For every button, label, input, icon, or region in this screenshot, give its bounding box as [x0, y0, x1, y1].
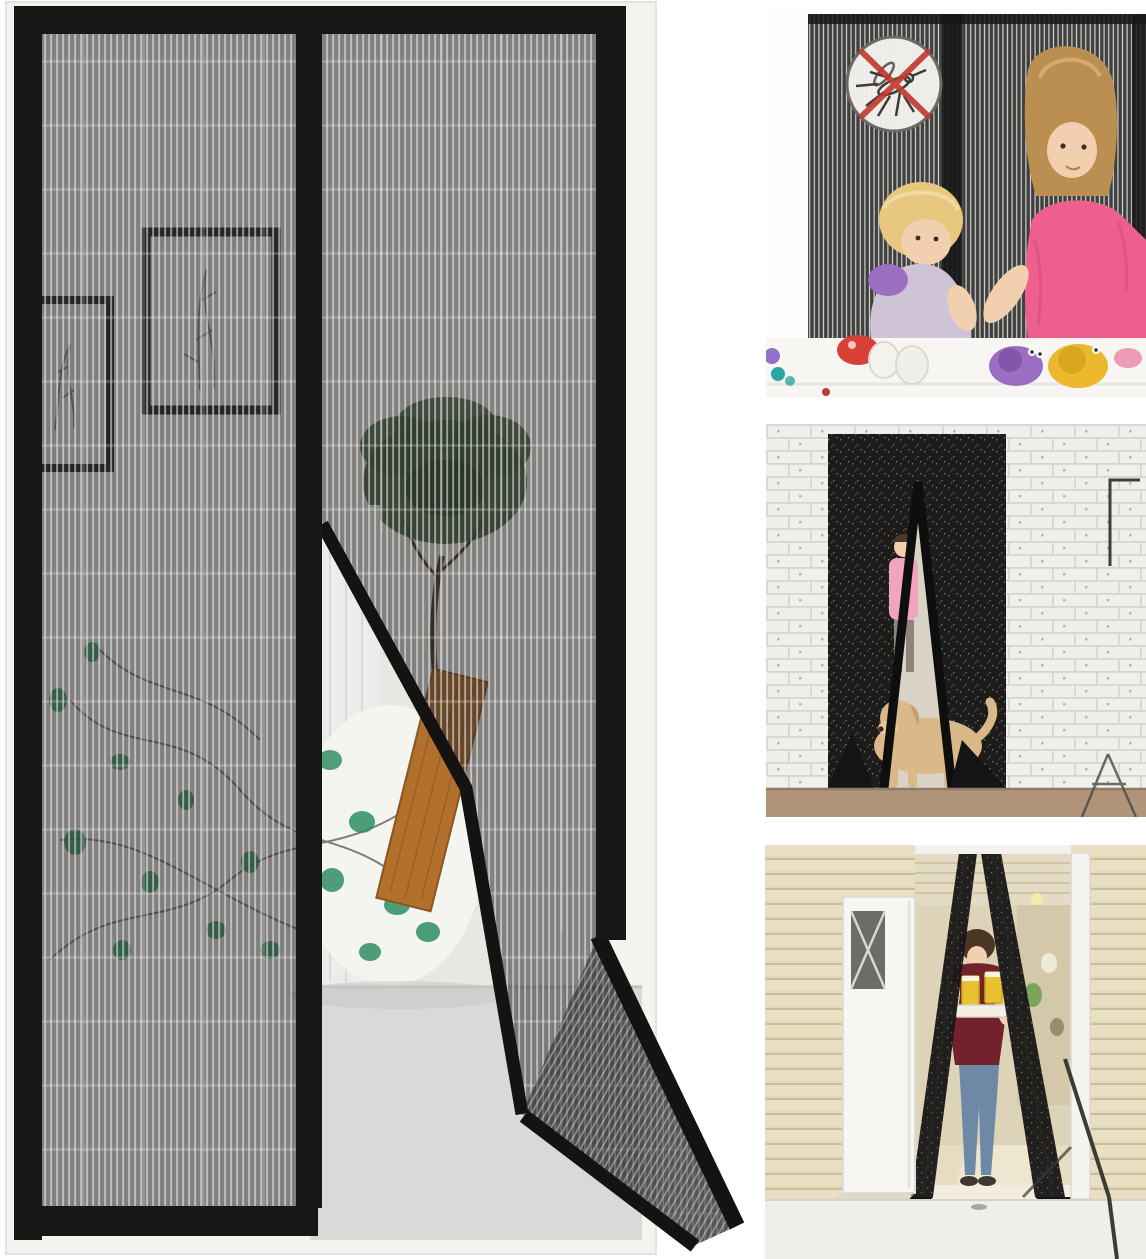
door-trim-right [1071, 853, 1090, 1199]
thumb-dog-through-door [766, 424, 1146, 817]
kids-photo-scene [766, 8, 1146, 397]
yellow-snail-toy [1048, 344, 1108, 388]
woman-photo-scene [765, 845, 1146, 1259]
main-photo-magnetic-screen-door [0, 0, 756, 1259]
mesh-left-panel [40, 32, 298, 1208]
open-door-leaf [831, 897, 915, 1207]
drink-tray [955, 1005, 1011, 1017]
product-image-collage [0, 0, 1146, 1259]
mesh-top-border [808, 14, 1146, 24]
thumb-kids-no-mosquito [766, 8, 1146, 397]
purple-toy [868, 264, 908, 296]
main-photo-scene [0, 0, 756, 1259]
outside-ground [765, 1199, 1146, 1259]
door-lintel [915, 845, 1071, 854]
thumb-woman-with-tray [765, 845, 1146, 1259]
magnetic-closure-strip [296, 32, 322, 1208]
dog-photo-scene [766, 424, 1146, 817]
no-mosquito-icon [847, 37, 941, 131]
ceiling-light [1031, 893, 1043, 905]
